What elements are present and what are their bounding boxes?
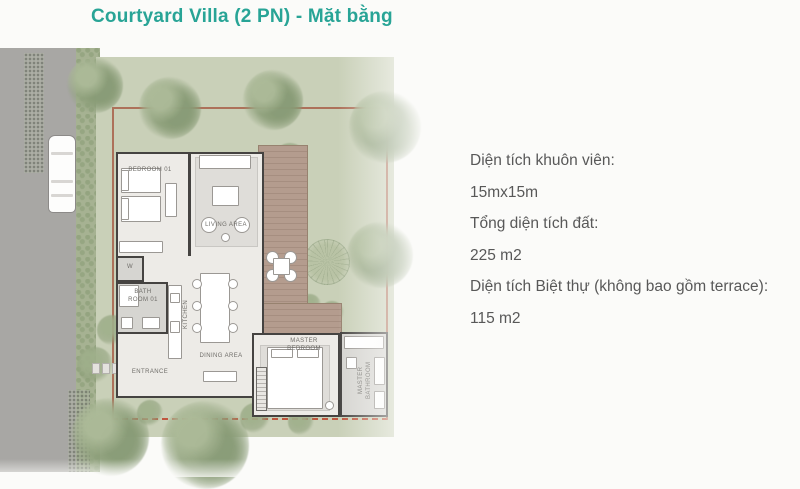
- room-label-master-bathroom: MASTER BATHROOM: [358, 350, 374, 410]
- info-value-land-area: 225 m2: [470, 247, 795, 266]
- dresser: [119, 241, 163, 253]
- pillow: [121, 198, 129, 220]
- bush: [137, 400, 163, 426]
- room-label-wardrobe: W: [122, 264, 138, 272]
- room-label-living: LIVING AREA: [196, 222, 256, 230]
- room-label-bathroom01: BATH ROOM 01: [124, 289, 162, 305]
- stove: [170, 321, 180, 333]
- info-value-villa-area: 115 m2: [470, 310, 795, 329]
- deck-table: [273, 258, 290, 275]
- dining-chair: [192, 279, 202, 289]
- tree: [161, 401, 249, 489]
- sink: [170, 293, 180, 303]
- room-label-dining: DINING AREA: [188, 353, 254, 361]
- room-label-master-bedroom: MASTER BEDROOM: [278, 338, 330, 354]
- dining-chair: [192, 301, 202, 311]
- wardrobe-strip: [256, 367, 267, 411]
- page-title: Courtyard Villa (2 PN) - Mặt bằng: [91, 6, 393, 28]
- side-table: [221, 233, 230, 242]
- room-label-entrance: ENTRANCE: [124, 369, 176, 377]
- vanity: [374, 357, 385, 385]
- room-label-bedroom01: BEDROOM 01: [119, 167, 181, 175]
- car: [48, 135, 76, 213]
- dining-chair: [192, 323, 202, 333]
- tree: [349, 91, 421, 163]
- info-value-lot-size: 15mx15m: [470, 184, 795, 203]
- dining-chair: [228, 279, 238, 289]
- toilet: [121, 317, 133, 329]
- info-label-land-area: Tổng diện tích đất:: [470, 215, 795, 234]
- info-label-lot-size: Diện tích khuôn viên:: [470, 152, 795, 171]
- bathtub: [344, 336, 384, 349]
- nightstand: [325, 401, 334, 410]
- stepping-stone: [102, 363, 110, 374]
- sofa: [199, 155, 251, 169]
- room-label-kitchen: KITCHEN: [183, 283, 191, 345]
- floor-plan: BEDROOM 01 LIVING AREA KITCHEN DINING AR…: [0, 45, 460, 477]
- coffee-table: [212, 186, 239, 206]
- slide: Courtyard Villa (2 PN) - Mặt bằng: [0, 0, 800, 477]
- toilet: [346, 357, 357, 369]
- vanity: [142, 317, 160, 329]
- paving-texture: [24, 53, 44, 173]
- tree: [243, 70, 303, 130]
- wall: [188, 154, 191, 256]
- tree: [139, 77, 201, 139]
- courtyard-tree: [304, 239, 350, 285]
- dining-table: [200, 273, 230, 343]
- tree: [67, 57, 123, 113]
- stepping-stone: [92, 363, 100, 374]
- shower: [374, 391, 385, 409]
- sideboard: [203, 371, 237, 382]
- dining-chair: [228, 323, 238, 333]
- tree: [347, 222, 413, 288]
- dining-chair: [228, 301, 238, 311]
- terrace-deck-ext: [258, 303, 342, 335]
- info-panel: Diện tích khuôn viên: 15mx15m Tổng diện …: [470, 152, 795, 342]
- desk: [165, 183, 177, 217]
- info-label-villa-area: Diện tích Biệt thự (không bao gồm terrac…: [470, 278, 795, 297]
